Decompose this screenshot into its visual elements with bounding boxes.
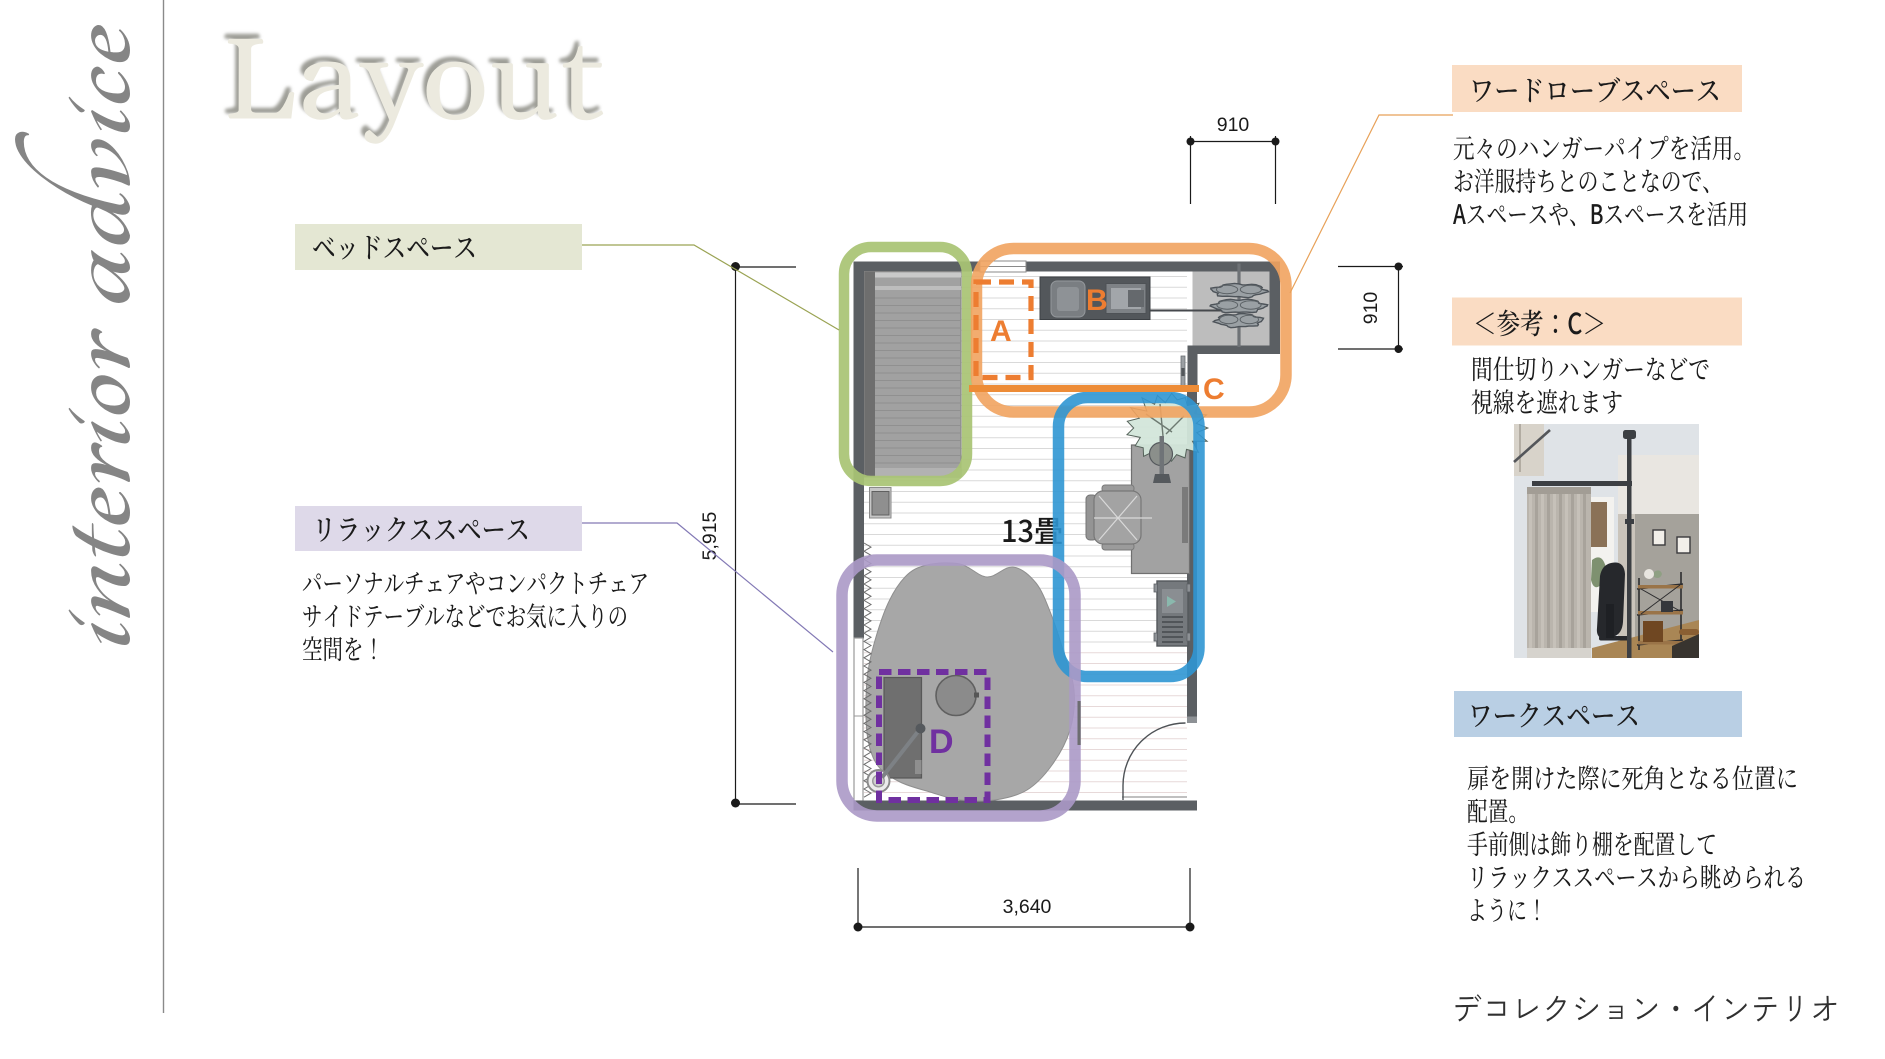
svg-text:910: 910 — [1217, 114, 1250, 136]
svg-text:D: D — [929, 723, 954, 761]
svg-text:5,915: 5,915 — [699, 511, 721, 560]
svg-text:3,640: 3,640 — [1003, 896, 1052, 918]
svg-text:910: 910 — [1360, 292, 1382, 325]
svg-text:A: A — [990, 315, 1012, 348]
svg-text:B: B — [1086, 284, 1108, 317]
svg-text:C: C — [1203, 373, 1225, 406]
